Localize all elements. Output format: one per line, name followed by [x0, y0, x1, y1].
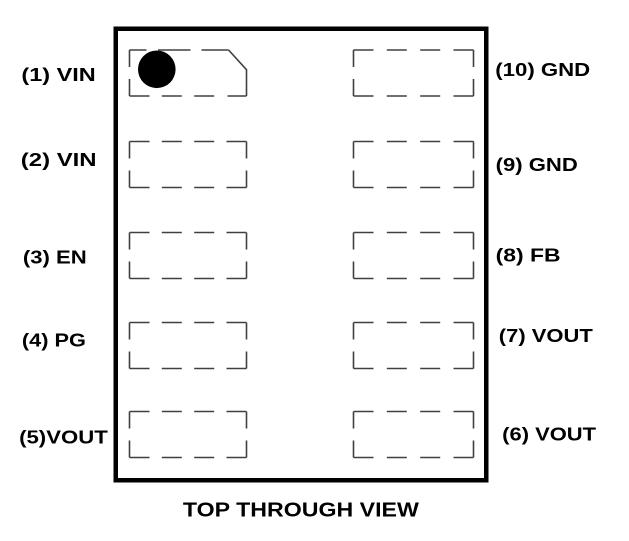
svg-text:(8) FB: (8) FB — [496, 245, 561, 265]
svg-text:TOP THROUGH VIEW: TOP THROUGH VIEW — [183, 500, 419, 522]
svg-text:(3) EN: (3) EN — [23, 248, 87, 268]
svg-text:(4) PG: (4) PG — [22, 330, 86, 350]
svg-text:(6) VOUT: (6) VOUT — [502, 425, 596, 445]
svg-text:(10) GND: (10) GND — [495, 60, 590, 80]
svg-text:(1) VIN: (1) VIN — [21, 65, 95, 85]
svg-text:(7) VOUT: (7) VOUT — [499, 326, 593, 346]
svg-text:(2) VIN: (2) VIN — [21, 150, 97, 170]
svg-text:(9) GND: (9) GND — [496, 155, 578, 175]
svg-text:(5)VOUT: (5)VOUT — [19, 428, 108, 448]
